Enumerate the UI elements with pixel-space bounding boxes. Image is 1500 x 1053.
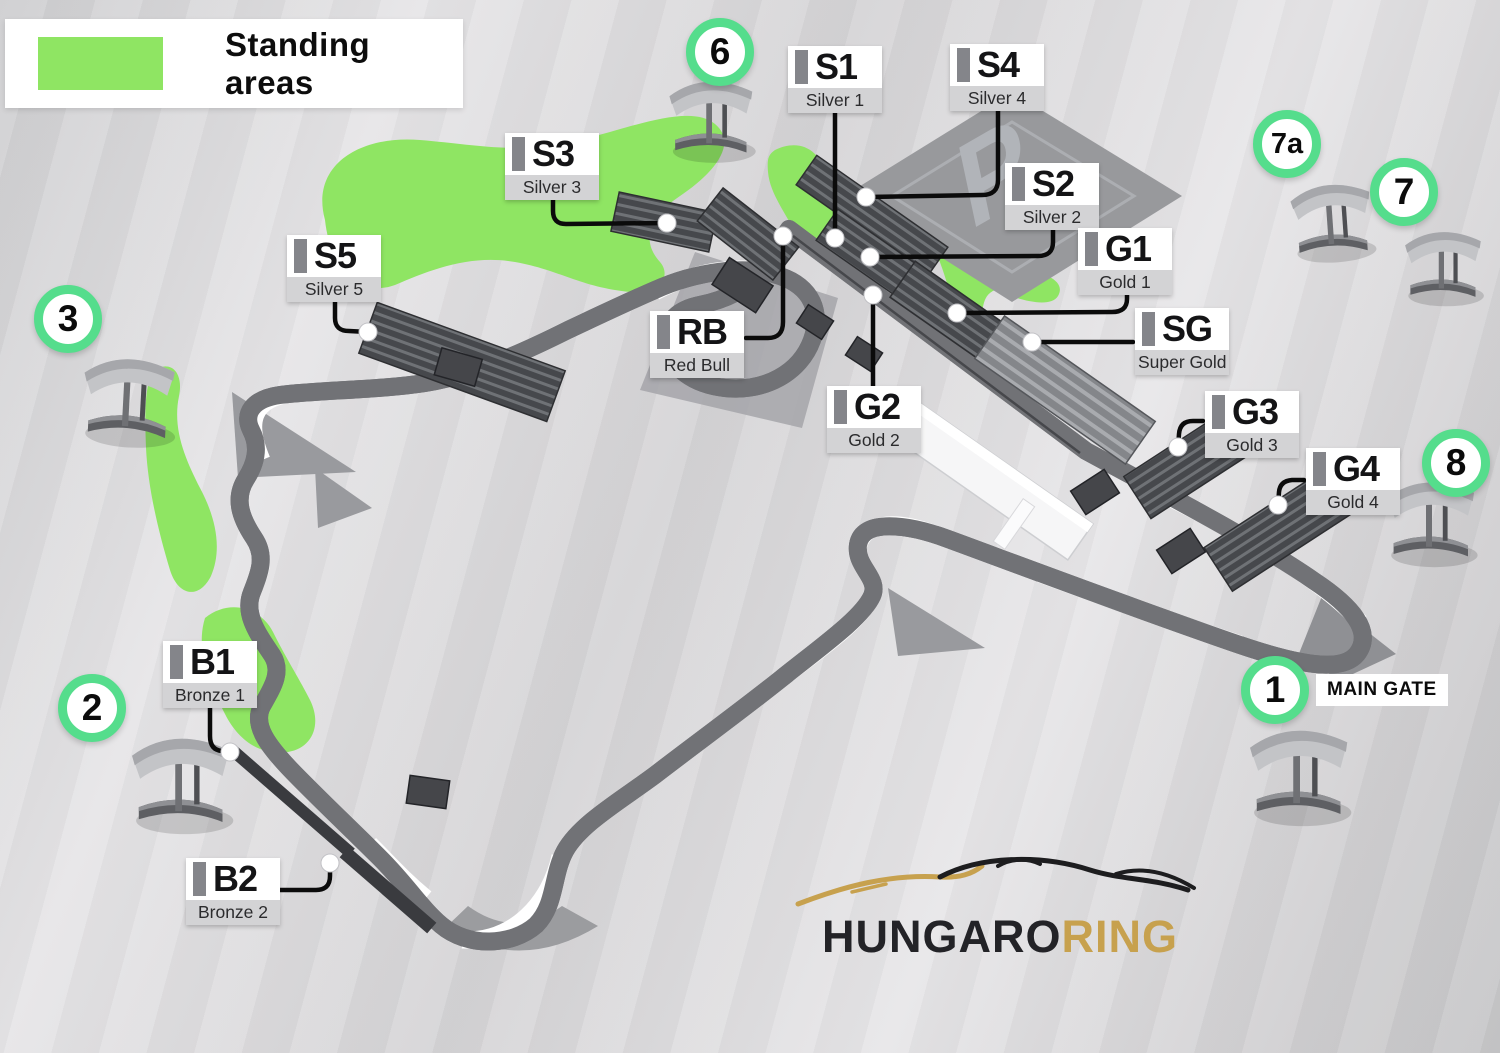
stand-code: S5 — [314, 238, 356, 274]
stand-label-red-bull[interactable]: RB Red Bull — [650, 311, 744, 378]
stand-label-gold-3[interactable]: G3 Gold 3 — [1205, 391, 1299, 458]
stand-name: Silver 5 — [287, 277, 381, 302]
stand-label-silver-1[interactable]: S1 Silver 1 — [788, 46, 882, 113]
stand-name: Gold 3 — [1205, 433, 1299, 458]
stand-code: S4 — [977, 47, 1019, 83]
stand-name: Silver 1 — [788, 88, 882, 113]
stand-name: Bronze 2 — [186, 900, 280, 925]
stand-code: B1 — [190, 644, 234, 680]
stand-label-silver-2[interactable]: S2 Silver 2 — [1005, 163, 1099, 230]
label-bar — [294, 239, 307, 273]
stand-code: SG — [1162, 311, 1212, 347]
label-bar — [657, 315, 670, 349]
kiosk-gate-1 — [1250, 731, 1351, 826]
legend: Standing areas — [5, 19, 463, 108]
stand-label-gold-4[interactable]: G4 Gold 4 — [1306, 448, 1400, 515]
gate-marker-1[interactable]: 1 — [1241, 656, 1309, 724]
label-bar — [795, 50, 808, 84]
stand-label-silver-5[interactable]: S5 Silver 5 — [287, 235, 381, 302]
legend-label: Standing areas — [225, 26, 463, 102]
stand-label-super-gold[interactable]: SG Super Gold — [1135, 308, 1229, 375]
stand-name: Gold 1 — [1078, 270, 1172, 295]
stand-name: Bronze 1 — [163, 683, 257, 708]
stand-code: G2 — [854, 389, 900, 425]
kiosk-gate-7 — [1405, 232, 1484, 306]
stand-name: Red Bull — [650, 353, 744, 378]
gate-marker-2[interactable]: 2 — [58, 674, 126, 742]
stand-code: B2 — [213, 861, 257, 897]
gate-number: 6 — [710, 31, 731, 73]
gate-marker-3[interactable]: 3 — [34, 285, 102, 353]
logo-text: HUNGARORING — [790, 914, 1210, 959]
gate-marker-6[interactable]: 6 — [686, 18, 754, 86]
label-bar — [1212, 395, 1225, 429]
stand-label-bronze-1[interactable]: B1 Bronze 1 — [163, 641, 257, 708]
stand-code: S1 — [815, 49, 857, 85]
stand-code: RB — [677, 314, 727, 350]
label-bar — [957, 48, 970, 82]
stand-code: G3 — [1232, 394, 1278, 430]
hungaroring-logo: HUNGARORING — [790, 848, 1210, 959]
gate-number: 1 — [1265, 669, 1286, 711]
stand-label-silver-3[interactable]: S3 Silver 3 — [505, 133, 599, 200]
gate-number: 7a — [1271, 128, 1303, 161]
gate-number: 7 — [1394, 171, 1415, 213]
label-bar — [1142, 312, 1155, 346]
stand-label-gold-1[interactable]: G1 Gold 1 — [1078, 228, 1172, 295]
stand-label-gold-2[interactable]: G2 Gold 2 — [827, 386, 921, 453]
standing-area-swatch — [38, 37, 163, 90]
gate-marker-8[interactable]: 8 — [1422, 429, 1490, 497]
stand-name: Silver 2 — [1005, 205, 1099, 230]
stand-code: S3 — [532, 136, 574, 172]
kiosk-gate-7a — [1290, 182, 1378, 265]
label-bar — [1085, 232, 1098, 266]
stand-name: Gold 4 — [1306, 490, 1400, 515]
kiosk-gate-2 — [132, 739, 233, 834]
label-bar — [1012, 167, 1025, 201]
stand-code: G4 — [1333, 451, 1379, 487]
main-gate-label: MAIN GATE — [1316, 674, 1448, 706]
stand-label-bronze-2[interactable]: B2 Bronze 2 — [186, 858, 280, 925]
stand-name: Silver 4 — [950, 86, 1044, 111]
stand-code: S2 — [1032, 166, 1074, 202]
stand-name: Silver 3 — [505, 175, 599, 200]
gate-number: 8 — [1446, 442, 1467, 484]
stand-name: Super Gold — [1135, 350, 1229, 375]
stand-label-silver-4[interactable]: S4 Silver 4 — [950, 44, 1044, 111]
gate-marker-7[interactable]: 7 — [1370, 158, 1438, 226]
gate-number: 2 — [82, 687, 103, 729]
label-bar — [512, 137, 525, 171]
logo-hungaro: HUNGARO — [822, 911, 1062, 962]
label-bar — [834, 390, 847, 424]
label-bar — [170, 645, 183, 679]
stand-name: Gold 2 — [827, 428, 921, 453]
label-bar — [1313, 452, 1326, 486]
gate-number: 3 — [58, 298, 79, 340]
gate-marker-7a[interactable]: 7a — [1253, 110, 1321, 178]
label-bar — [193, 862, 206, 896]
logo-ring: RING — [1062, 911, 1179, 962]
logo-car-swoosh — [790, 848, 1210, 912]
stand-code: G1 — [1105, 231, 1151, 267]
